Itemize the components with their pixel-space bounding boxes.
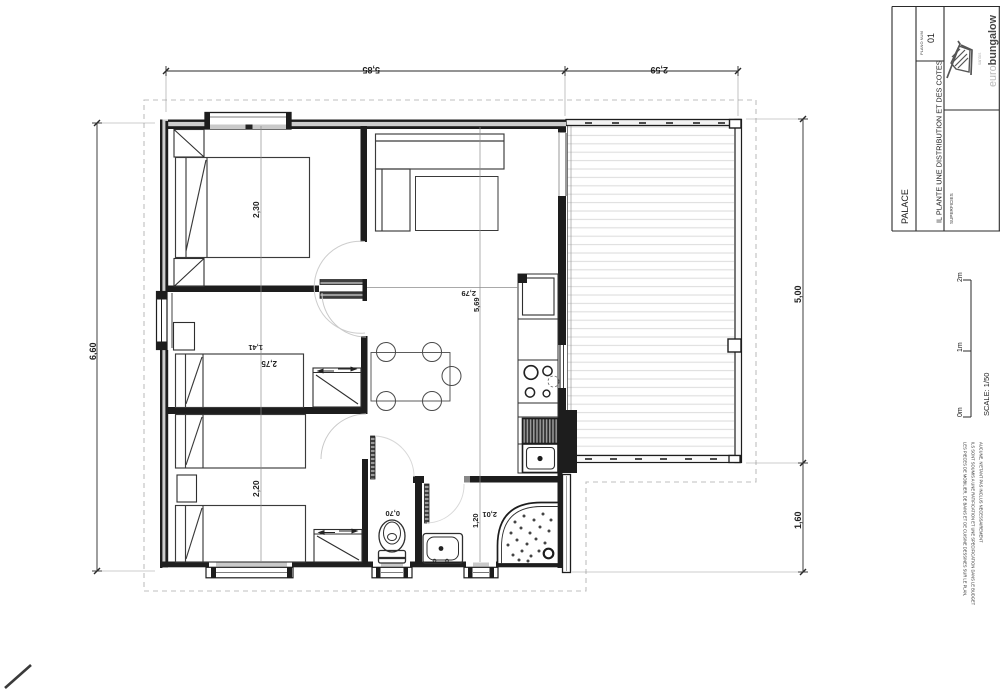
svg-text:eurobungalow: eurobungalow bbox=[987, 14, 999, 87]
svg-text:01: 01 bbox=[926, 33, 936, 43]
svg-text:PLANO NUM: PLANO NUM bbox=[919, 31, 924, 55]
svg-text:2,01: 2,01 bbox=[482, 510, 497, 519]
svg-text:PALACE: PALACE bbox=[900, 189, 910, 224]
svg-text:SUPERFICIES: SUPERFICIES bbox=[949, 193, 954, 224]
svg-text:2,59: 2,59 bbox=[650, 65, 668, 75]
svg-text:1m: 1m bbox=[957, 342, 964, 352]
svg-text:LES PIECES DE MOBILIER, DE BAI: LES PIECES DE MOBILIER, DE BAINS ET DE C… bbox=[963, 442, 968, 596]
svg-text:1,60: 1,60 bbox=[793, 511, 803, 529]
svg-text:AUCUNE, N'ETANT PAS INCLUS NEC: AUCUNE, N'ETANT PAS INCLUS NECESSAIREMEN… bbox=[979, 442, 984, 543]
svg-text:1,41: 1,41 bbox=[248, 343, 263, 352]
svg-text:santos: santos bbox=[977, 53, 982, 65]
svg-text:IL PLANTE UNE DISTRIBUTION ET: IL PLANTE UNE DISTRIBUTION ET DES COTES bbox=[935, 60, 944, 223]
svg-text:5,69: 5,69 bbox=[472, 297, 481, 312]
svg-text:5,00: 5,00 bbox=[793, 285, 803, 303]
svg-text:2m: 2m bbox=[957, 272, 964, 282]
svg-text:0,70: 0,70 bbox=[385, 509, 400, 518]
svg-text:0m: 0m bbox=[957, 407, 964, 417]
svg-text:2,30: 2,30 bbox=[251, 201, 261, 218]
svg-text:6,60: 6,60 bbox=[88, 342, 98, 360]
svg-text:2,20: 2,20 bbox=[251, 480, 261, 497]
svg-text:1,20: 1,20 bbox=[471, 513, 480, 528]
svg-text:ILS SONT SOUMIS A UNE RATIFICA: ILS SONT SOUMIS A UNE RATIFICATION ET UN… bbox=[971, 442, 976, 606]
svg-text:SCALE: 1/50: SCALE: 1/50 bbox=[982, 373, 991, 416]
svg-text:5,85: 5,85 bbox=[362, 65, 380, 75]
svg-text:2,75: 2,75 bbox=[261, 359, 277, 368]
svg-text:2,79: 2,79 bbox=[461, 289, 476, 298]
